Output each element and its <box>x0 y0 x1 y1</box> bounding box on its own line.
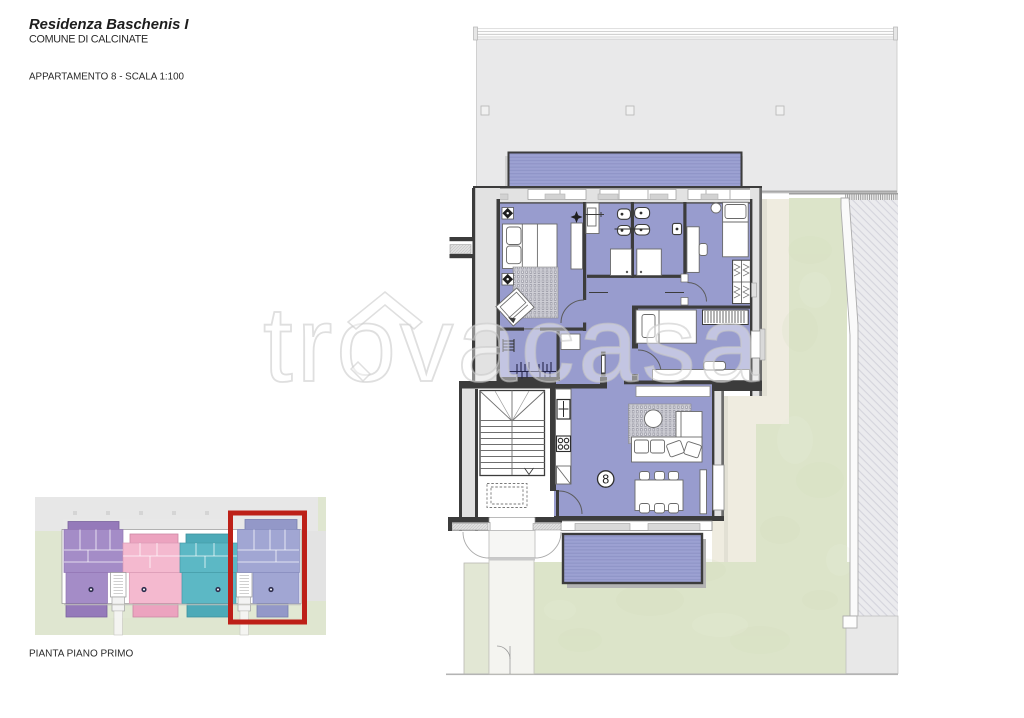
svg-text:Residenza Baschenis I: Residenza Baschenis I <box>29 17 189 33</box>
svg-text:APPARTAMENTO 8 - SCALA 1:100: APPARTAMENTO 8 - SCALA 1:100 <box>29 72 185 83</box>
svg-text:COMUNE DI CALCINATE: COMUNE DI CALCINATE <box>29 34 148 46</box>
svg-text:PIANTA PIANO PRIMO: PIANTA PIANO PRIMO <box>29 649 133 660</box>
svg-text:trovacasa: trovacasa <box>263 284 763 404</box>
svg-text:8: 8 <box>602 473 609 487</box>
